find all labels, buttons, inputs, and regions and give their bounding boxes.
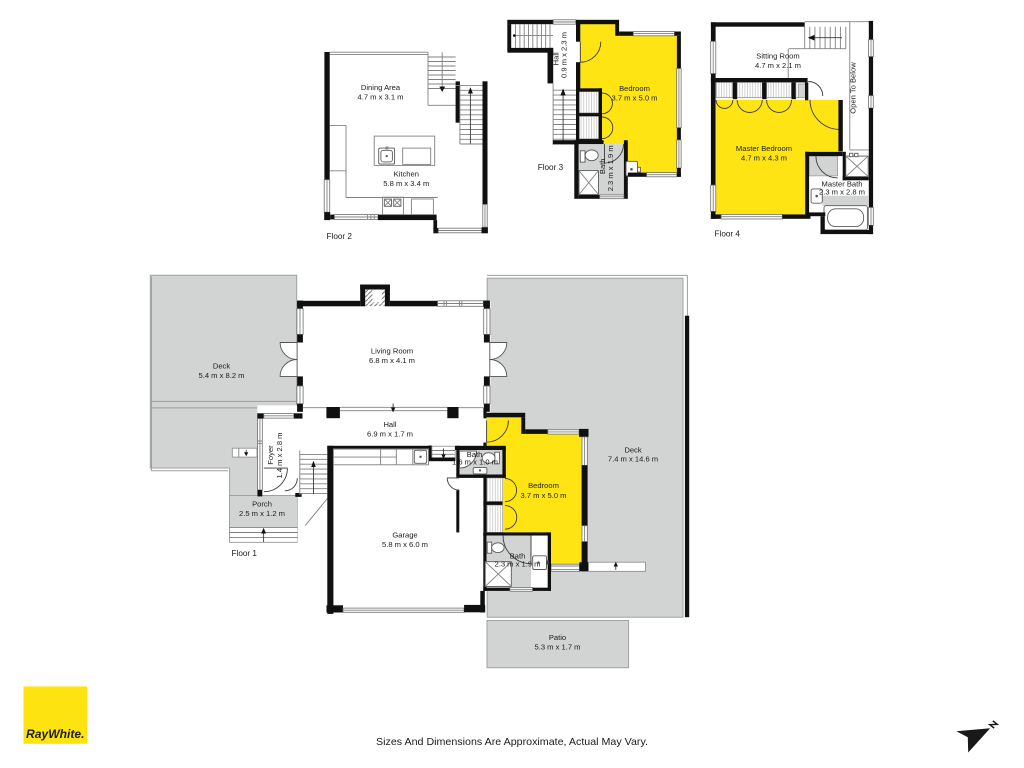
svg-text:Floor 3: Floor 3 (538, 163, 564, 172)
svg-text:Hall: Hall (383, 420, 396, 429)
svg-text:Deck: Deck (624, 446, 642, 455)
svg-text:6.8 m x 4.1 m: 6.8 m x 4.1 m (369, 356, 415, 365)
svg-text:4.7 m x 3.1 m: 4.7 m x 3.1 m (357, 93, 403, 102)
svg-text:5.8 m x 6.0 m: 5.8 m x 6.0 m (382, 540, 428, 549)
svg-text:Sizes And Dimensions Are Appro: Sizes And Dimensions Are Approximate, Ac… (376, 737, 648, 748)
svg-text:0.9 m x 2.3 m: 0.9 m x 2.3 m (560, 32, 569, 78)
svg-text:Floor 4: Floor 4 (715, 230, 741, 239)
svg-text:Sitting Room: Sitting Room (756, 52, 799, 61)
svg-text:5.3 m x 1.7 m: 5.3 m x 1.7 m (534, 643, 580, 652)
svg-text:5.4 m x 8.2 m: 5.4 m x 8.2 m (198, 371, 244, 380)
svg-text:6.9 m x 1.7 m: 6.9 m x 1.7 m (367, 429, 413, 438)
svg-text:Bedroom: Bedroom (619, 84, 650, 93)
svg-text:Floor 2: Floor 2 (327, 232, 353, 241)
svg-text:7.4 m x 14.6 m: 7.4 m x 14.6 m (608, 454, 658, 463)
svg-text:2.3 m x 1.9 m: 2.3 m x 1.9 m (494, 559, 540, 568)
svg-text:Master Bedroom: Master Bedroom (736, 144, 792, 153)
svg-text:3.7 m x 5.0 m: 3.7 m x 5.0 m (520, 491, 566, 500)
svg-text:5.8 m x 3.4 m: 5.8 m x 3.4 m (383, 179, 429, 188)
svg-text:Deck: Deck (213, 362, 231, 371)
svg-text:Foyer: Foyer (266, 445, 275, 465)
svg-text:Porch: Porch (252, 500, 272, 509)
svg-text:Floor 1: Floor 1 (232, 549, 258, 558)
svg-text:RayWhite.: RayWhite. (26, 727, 85, 741)
svg-text:2.3 m x 1.9 m: 2.3 m x 1.9 m (606, 145, 615, 191)
svg-text:Dining Area: Dining Area (361, 83, 401, 92)
svg-text:Garage: Garage (392, 531, 417, 540)
svg-text:4.7 m x 4.3 m: 4.7 m x 4.3 m (741, 154, 787, 163)
svg-text:Bedroom: Bedroom (528, 481, 559, 490)
svg-text:2.3 m x 2.8 m: 2.3 m x 2.8 m (819, 187, 865, 196)
svg-text:Open To Below: Open To Below (849, 62, 858, 114)
svg-text:Living Room: Living Room (371, 347, 413, 356)
svg-text:Patio: Patio (549, 633, 566, 642)
svg-text:4.7 m x 2.1 m: 4.7 m x 2.1 m (755, 61, 801, 70)
svg-text:2.5 m x 1.2 m: 2.5 m x 1.2 m (239, 509, 285, 518)
svg-text:1.4 m x 2.8 m: 1.4 m x 2.8 m (275, 432, 284, 478)
svg-text:Kitchen: Kitchen (394, 170, 419, 179)
svg-text:3.7 m x 5.0 m: 3.7 m x 5.0 m (611, 94, 657, 103)
svg-text:1.6 m x 1.0 m: 1.6 m x 1.0 m (452, 457, 498, 466)
